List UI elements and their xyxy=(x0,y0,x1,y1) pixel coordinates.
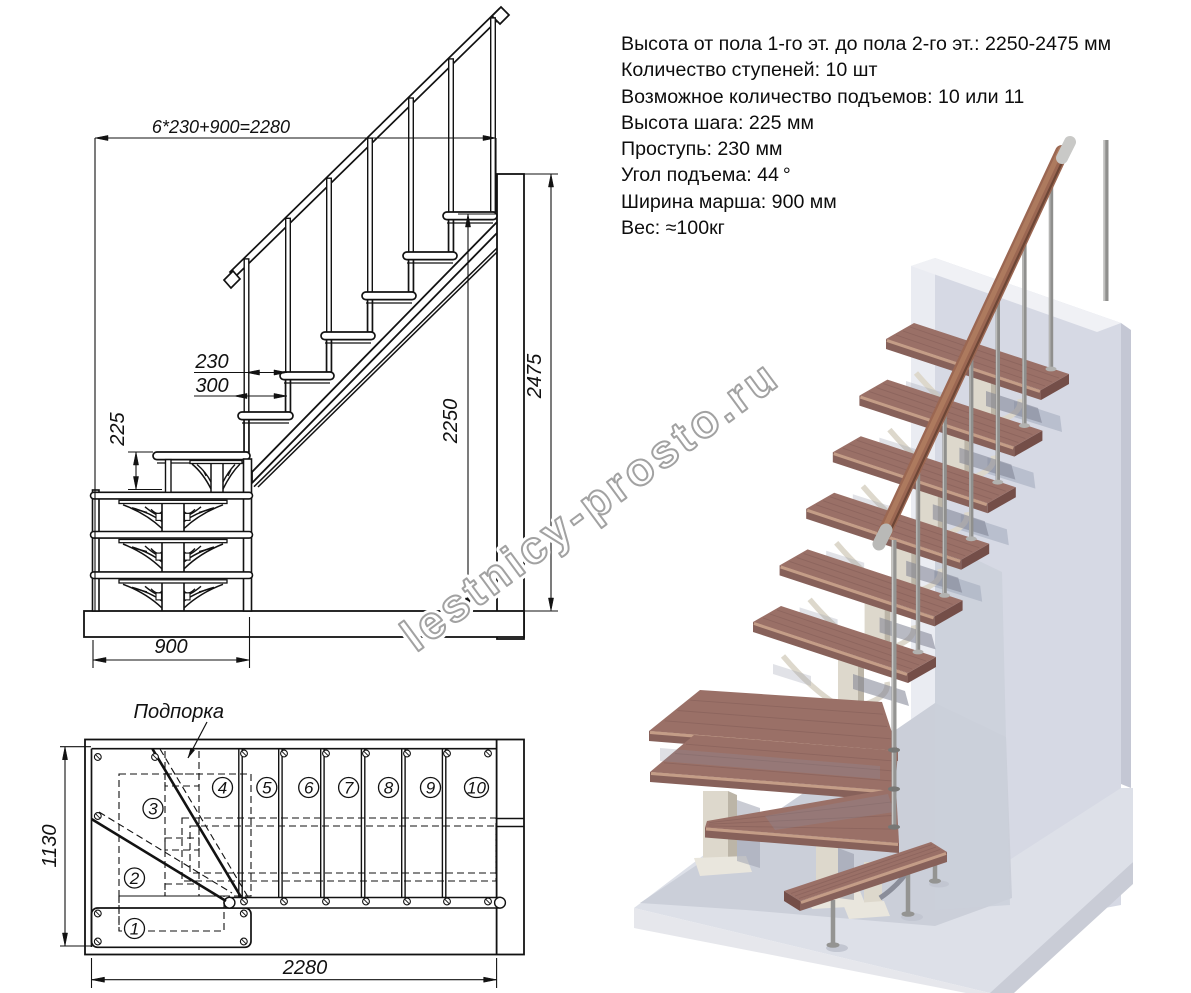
svg-text:300: 300 xyxy=(195,375,228,397)
svg-text:4: 4 xyxy=(218,779,227,798)
svg-text:lestnicy-prosto.ru: lestnicy-prosto.ru xyxy=(391,351,786,661)
svg-text:2280: 2280 xyxy=(282,957,328,979)
svg-text:1130: 1130 xyxy=(39,824,61,867)
svg-text:6: 6 xyxy=(304,779,314,798)
svg-text:5: 5 xyxy=(262,779,272,798)
svg-text:900: 900 xyxy=(154,636,187,658)
svg-text:6*230+900=2280: 6*230+900=2280 xyxy=(152,117,290,137)
svg-text:8: 8 xyxy=(384,779,394,798)
svg-text:2475: 2475 xyxy=(524,353,546,399)
svg-text:225: 225 xyxy=(107,411,129,446)
svg-text:Подпорка: Подпорка xyxy=(134,701,225,723)
svg-text:3: 3 xyxy=(148,800,158,819)
svg-text:2: 2 xyxy=(129,869,140,888)
svg-text:10: 10 xyxy=(467,779,486,798)
svg-text:2250: 2250 xyxy=(440,399,462,445)
svg-text:7: 7 xyxy=(344,779,354,798)
svg-text:230: 230 xyxy=(194,351,228,373)
svg-text:1: 1 xyxy=(130,920,139,939)
svg-text:9: 9 xyxy=(426,779,436,798)
